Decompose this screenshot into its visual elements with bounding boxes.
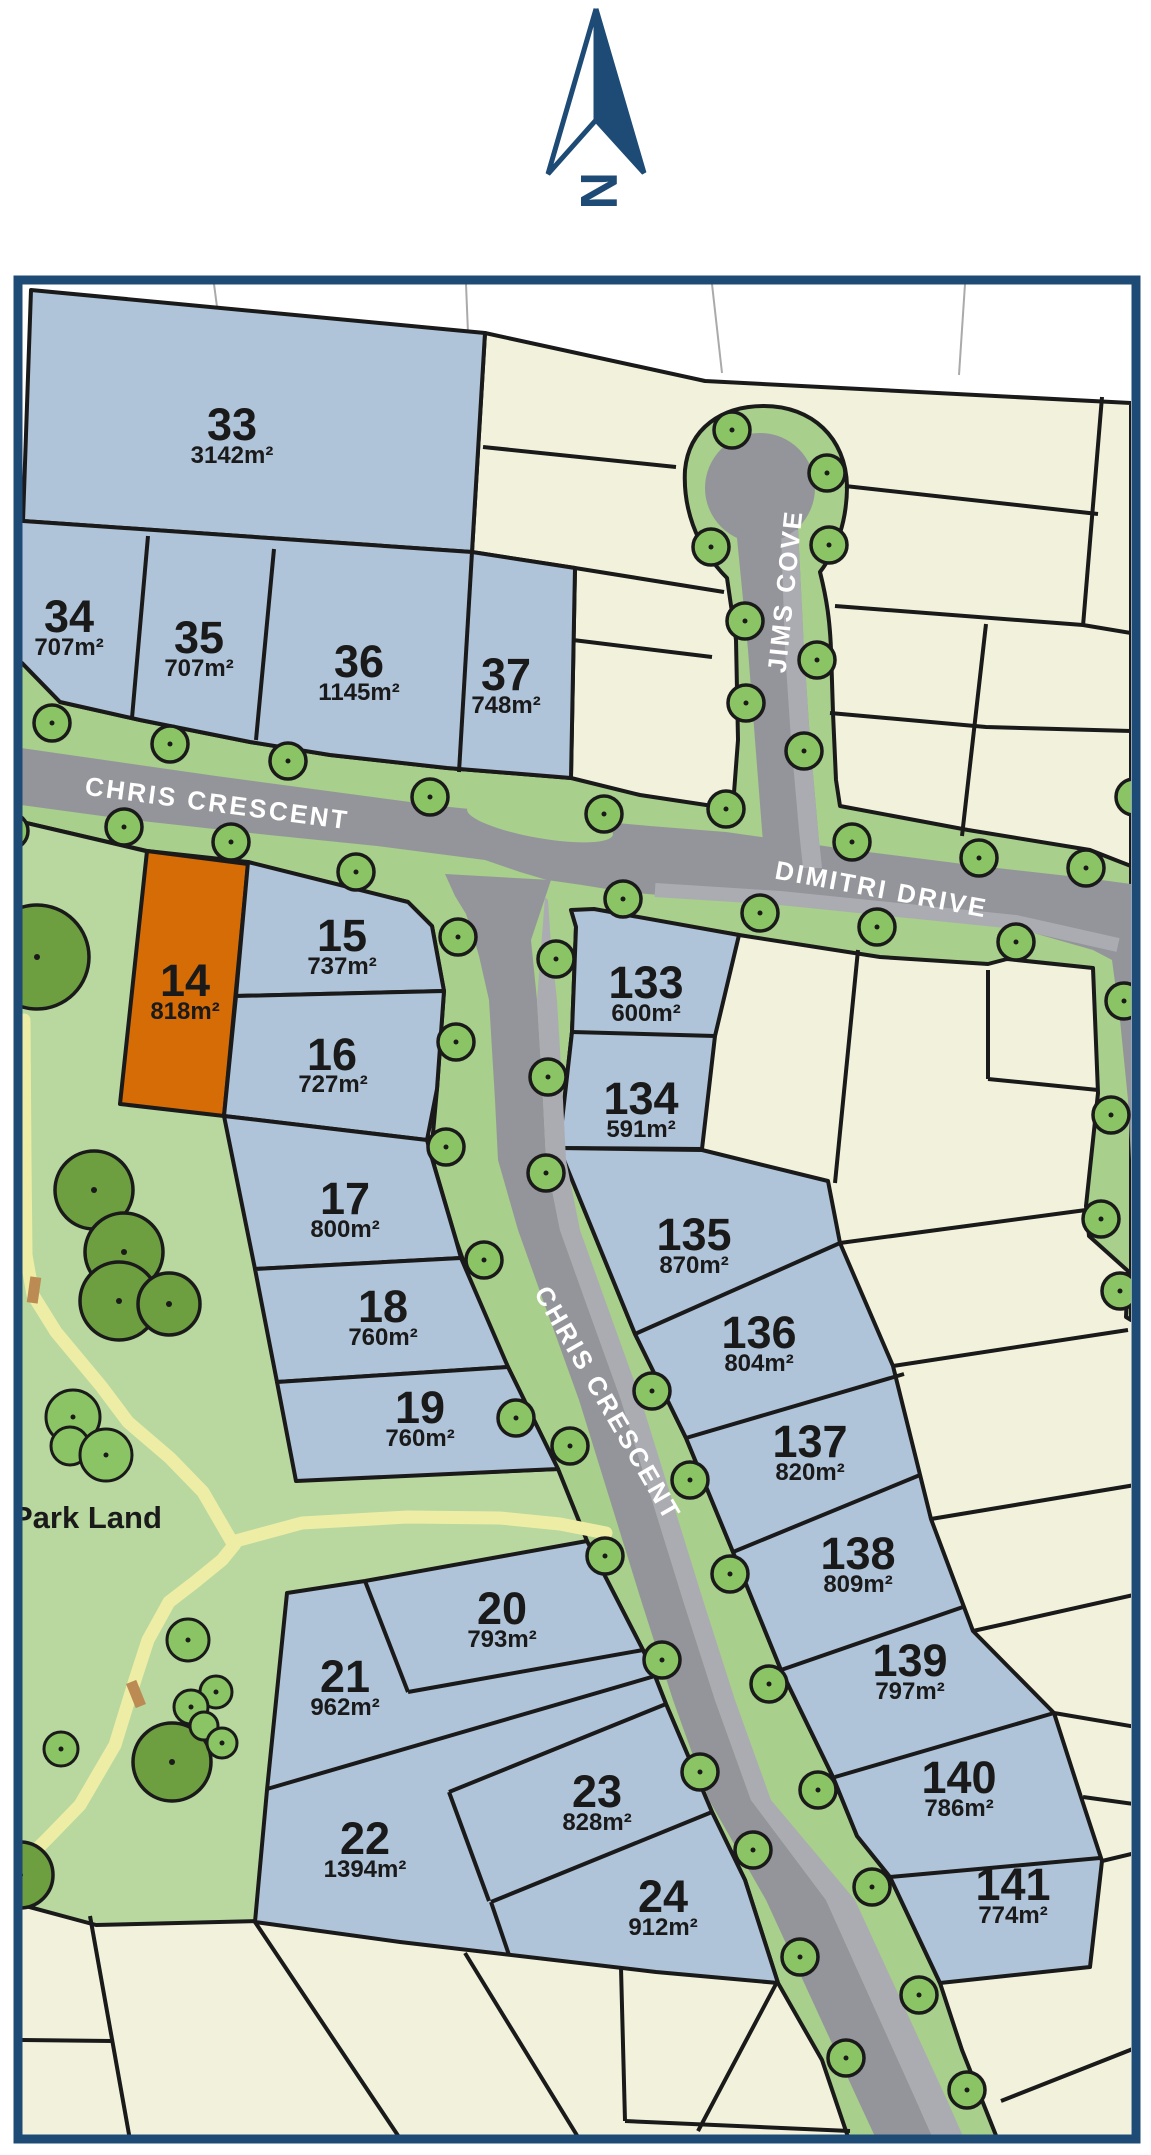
- svg-text:727m²: 727m²: [298, 1071, 367, 1098]
- svg-text:804m²: 804m²: [724, 1350, 793, 1377]
- svg-text:820m²: 820m²: [775, 1459, 844, 1486]
- svg-text:591m²: 591m²: [606, 1116, 675, 1143]
- svg-text:748m²: 748m²: [471, 692, 540, 719]
- svg-text:828m²: 828m²: [562, 1809, 631, 1836]
- svg-text:809m²: 809m²: [823, 1571, 892, 1598]
- svg-text:600m²: 600m²: [611, 1000, 680, 1027]
- svg-text:800m²: 800m²: [310, 1216, 379, 1243]
- svg-text:818m²: 818m²: [150, 998, 219, 1025]
- svg-text:870m²: 870m²: [659, 1252, 728, 1279]
- svg-text:1145m²: 1145m²: [318, 679, 399, 706]
- svg-text:760m²: 760m²: [385, 1425, 454, 1452]
- svg-text:3142m²: 3142m²: [191, 442, 274, 469]
- svg-text:707m²: 707m²: [34, 634, 103, 661]
- svg-text:Park Land: Park Land: [12, 1500, 162, 1535]
- svg-text:962m²: 962m²: [310, 1694, 379, 1721]
- svg-text:707m²: 707m²: [164, 655, 233, 682]
- svg-text:1394m²: 1394m²: [324, 1856, 407, 1883]
- svg-text:774m²: 774m²: [978, 1902, 1047, 1929]
- svg-text:786m²: 786m²: [924, 1795, 993, 1822]
- svg-text:912m²: 912m²: [628, 1914, 697, 1941]
- svg-text:797m²: 797m²: [875, 1678, 944, 1705]
- svg-text:760m²: 760m²: [348, 1324, 417, 1351]
- svg-text:N: N: [569, 172, 627, 210]
- svg-text:737m²: 737m²: [307, 953, 376, 980]
- svg-text:793m²: 793m²: [467, 1626, 536, 1653]
